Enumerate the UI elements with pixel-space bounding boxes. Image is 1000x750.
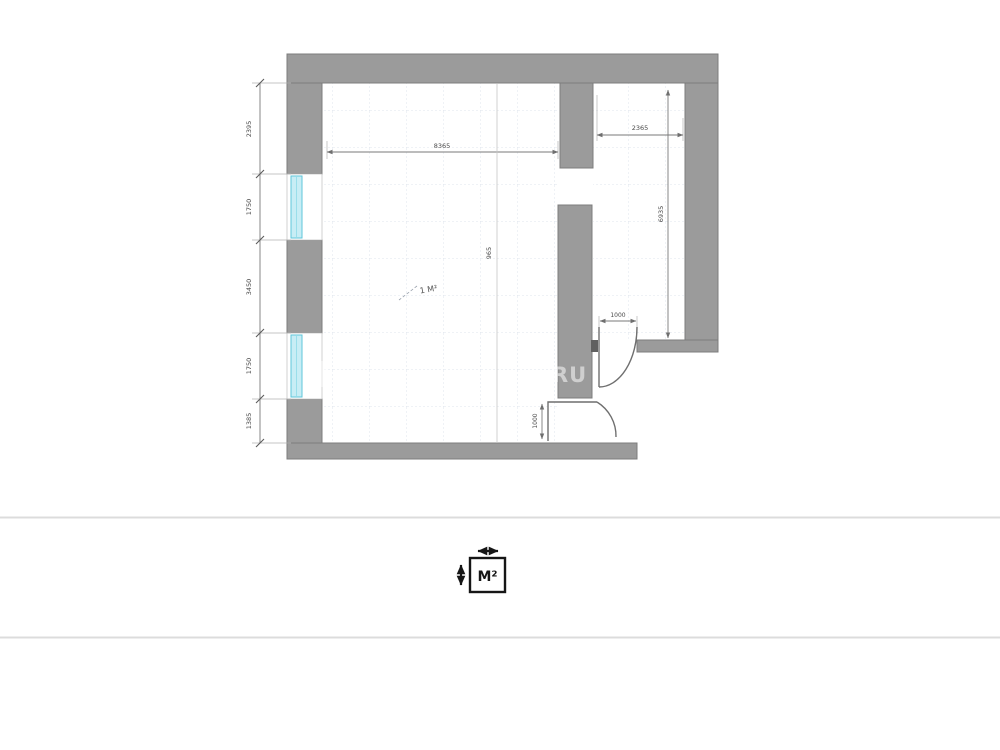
wall-segment-top: [287, 54, 718, 83]
area-dimensions-icon[interactable]: M²: [461, 551, 505, 592]
dimension-label: 2395: [245, 121, 253, 138]
floor-plan-image: 2395 1750 3450 1750 1385 8365 2365 6935 …: [0, 0, 1000, 750]
dimension-label: 1750: [245, 358, 253, 375]
wall-segment-left-top: [287, 83, 322, 174]
dimension-label: 1385: [245, 413, 253, 430]
dimension-label: 8365: [434, 142, 451, 150]
watermark-fragment: [315, 361, 328, 387]
dimension-label: 3450: [245, 279, 253, 296]
wall-segment-left-bottom: [287, 399, 322, 443]
dimension-label: 1750: [245, 199, 253, 216]
page: 2395 1750 3450 1750 1385 8365 2365 6935 …: [0, 0, 1000, 750]
watermark-text: RU: [552, 363, 587, 387]
window-upper: [287, 174, 322, 240]
wall-segment-left-middle: [287, 240, 322, 333]
area-icon-label: M²: [477, 569, 497, 585]
floor-grid-main-room: [322, 83, 558, 443]
dimension-label: 2365: [632, 124, 649, 132]
wall-segment-right: [685, 83, 718, 352]
dimension-label: 1000: [532, 413, 539, 428]
dimension-label: 1000: [610, 312, 625, 319]
wall-segment-bottom: [287, 443, 637, 459]
wall-segment-stub: [560, 83, 593, 168]
floor-grid-right-room: [593, 81, 685, 340]
dimension-label: 965: [485, 247, 493, 259]
door-swing-arc: [597, 402, 616, 437]
door-jamb: [591, 340, 598, 352]
dimension-label: 6935: [657, 206, 665, 223]
wall-segment-right-room-bottom: [637, 340, 718, 352]
dimension-chain-left: 2395 1750 3450 1750 1385: [245, 79, 291, 447]
